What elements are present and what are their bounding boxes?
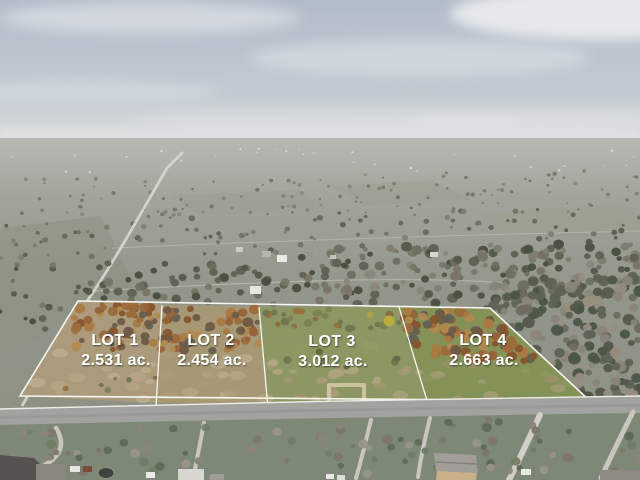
tree bbox=[138, 426, 144, 431]
tree bbox=[528, 291, 537, 299]
tree bbox=[292, 284, 301, 293]
tree bbox=[126, 156, 128, 158]
tree bbox=[369, 229, 374, 234]
tree bbox=[321, 267, 330, 275]
tree bbox=[369, 298, 378, 306]
tree bbox=[209, 268, 218, 276]
tree bbox=[39, 303, 45, 309]
tree bbox=[396, 320, 401, 325]
tree bbox=[255, 188, 259, 192]
tree bbox=[445, 171, 448, 174]
tree bbox=[408, 452, 415, 459]
tree bbox=[611, 248, 621, 257]
tree bbox=[347, 271, 356, 279]
tree bbox=[614, 236, 618, 240]
tree bbox=[478, 292, 485, 299]
tree bbox=[343, 294, 349, 300]
tree bbox=[343, 285, 352, 293]
tree bbox=[71, 315, 78, 321]
tree bbox=[281, 278, 290, 286]
tree bbox=[269, 179, 273, 183]
tree bbox=[286, 179, 290, 183]
tree bbox=[86, 230, 90, 233]
tree bbox=[29, 318, 36, 324]
tree bbox=[101, 295, 108, 301]
tree bbox=[547, 173, 551, 176]
tree bbox=[100, 197, 102, 199]
tree bbox=[417, 287, 425, 295]
tree bbox=[215, 156, 216, 157]
tree bbox=[410, 207, 413, 210]
tree bbox=[493, 245, 502, 253]
ground-patch bbox=[56, 390, 64, 395]
tree bbox=[564, 453, 574, 462]
tree bbox=[177, 212, 181, 216]
ground-patch bbox=[203, 371, 219, 380]
tree bbox=[356, 233, 360, 237]
ground-patch bbox=[229, 371, 246, 380]
tree bbox=[53, 450, 59, 456]
tree bbox=[365, 270, 376, 280]
tree bbox=[11, 291, 17, 296]
tree bbox=[43, 182, 45, 184]
tree bbox=[71, 326, 79, 333]
tree bbox=[14, 262, 20, 267]
building bbox=[262, 251, 271, 257]
tree bbox=[126, 311, 134, 318]
tree bbox=[364, 173, 367, 176]
tree bbox=[595, 251, 604, 259]
tree bbox=[548, 231, 554, 237]
tree bbox=[82, 193, 85, 196]
tree bbox=[104, 278, 113, 287]
tree bbox=[565, 282, 577, 293]
building bbox=[277, 255, 287, 262]
tree bbox=[428, 197, 430, 199]
tree bbox=[516, 306, 527, 316]
tree bbox=[214, 252, 218, 256]
tree bbox=[512, 219, 517, 224]
tree bbox=[341, 263, 347, 269]
white-vehicle bbox=[337, 475, 345, 480]
tree bbox=[483, 263, 488, 268]
tree bbox=[169, 216, 172, 219]
tree bbox=[418, 203, 421, 206]
ground-patch bbox=[272, 369, 283, 375]
tree bbox=[570, 343, 579, 351]
tree bbox=[601, 188, 604, 191]
tree bbox=[442, 175, 446, 178]
house-roof bbox=[36, 464, 66, 480]
tree bbox=[62, 234, 68, 239]
tree bbox=[146, 323, 153, 330]
tree bbox=[36, 231, 40, 235]
tree bbox=[611, 230, 617, 235]
tree bbox=[540, 274, 549, 282]
tree bbox=[464, 176, 468, 179]
tree bbox=[63, 386, 69, 391]
tree bbox=[592, 356, 601, 364]
tree bbox=[130, 449, 140, 458]
tree bbox=[237, 289, 244, 295]
tree bbox=[232, 312, 240, 319]
tree bbox=[489, 282, 500, 291]
tree bbox=[410, 167, 412, 169]
tree bbox=[635, 175, 639, 178]
tree bbox=[528, 263, 537, 271]
tree bbox=[46, 253, 50, 256]
tree bbox=[554, 225, 558, 229]
tree bbox=[466, 192, 470, 195]
tree bbox=[173, 208, 177, 212]
lot-4-label: LOT 4 bbox=[459, 332, 506, 349]
ground-patch bbox=[136, 395, 151, 403]
tree bbox=[560, 248, 566, 253]
tree bbox=[415, 439, 423, 446]
tree bbox=[153, 292, 161, 299]
ground-patch bbox=[161, 351, 175, 359]
tree bbox=[162, 261, 169, 267]
tree bbox=[80, 213, 84, 216]
tree bbox=[71, 342, 81, 351]
tree bbox=[24, 317, 28, 321]
tree bbox=[392, 182, 396, 185]
tree bbox=[583, 330, 593, 339]
tree bbox=[192, 293, 201, 301]
tree bbox=[273, 250, 279, 255]
tree bbox=[593, 288, 602, 296]
ground-patch bbox=[540, 371, 550, 377]
tree bbox=[488, 437, 498, 446]
tree bbox=[172, 213, 176, 217]
tree bbox=[291, 211, 294, 214]
trampoline bbox=[98, 468, 114, 479]
tree bbox=[402, 235, 408, 241]
tree bbox=[472, 439, 481, 447]
tree bbox=[626, 165, 627, 166]
tree bbox=[444, 336, 452, 343]
tree bbox=[524, 271, 529, 276]
tree bbox=[419, 313, 427, 320]
tree bbox=[558, 321, 565, 327]
lot-1-acreage: 2.531 ac. bbox=[81, 352, 150, 369]
tree bbox=[612, 377, 621, 385]
tree bbox=[444, 314, 455, 324]
tree bbox=[42, 326, 48, 332]
tree bbox=[487, 464, 495, 471]
tree bbox=[505, 269, 516, 279]
tree bbox=[303, 153, 305, 155]
tree bbox=[311, 283, 320, 291]
tree bbox=[482, 449, 490, 456]
tree bbox=[421, 448, 428, 455]
tree bbox=[591, 231, 597, 236]
tree bbox=[435, 183, 438, 186]
ground-patch bbox=[126, 383, 140, 391]
tree bbox=[157, 210, 160, 212]
tree bbox=[239, 148, 241, 150]
tree bbox=[510, 291, 520, 300]
yellow-tree bbox=[367, 312, 374, 319]
tree bbox=[531, 447, 537, 452]
tree bbox=[423, 229, 429, 235]
tree bbox=[445, 215, 451, 220]
tree bbox=[396, 205, 398, 207]
tree bbox=[476, 221, 482, 226]
tree bbox=[255, 320, 261, 325]
tree bbox=[163, 306, 172, 314]
tree bbox=[625, 198, 629, 202]
ground-patch bbox=[373, 377, 381, 381]
tree bbox=[623, 379, 630, 385]
tree bbox=[450, 271, 461, 281]
tree bbox=[114, 288, 123, 296]
tree bbox=[135, 283, 144, 291]
tree bbox=[627, 441, 637, 450]
tree bbox=[421, 275, 429, 282]
tree bbox=[424, 219, 430, 224]
tree bbox=[434, 285, 441, 292]
tree bbox=[337, 211, 341, 214]
tree bbox=[105, 226, 109, 230]
tree bbox=[313, 152, 315, 153]
tree bbox=[209, 205, 213, 209]
tree bbox=[298, 254, 306, 261]
tree bbox=[338, 194, 342, 198]
tree bbox=[445, 264, 451, 269]
tree bbox=[88, 171, 91, 173]
tree bbox=[283, 231, 286, 234]
tree bbox=[520, 357, 527, 364]
tree bbox=[185, 203, 188, 206]
ground-patch bbox=[162, 391, 179, 400]
tree bbox=[492, 261, 499, 267]
tree bbox=[586, 239, 593, 245]
tree bbox=[502, 183, 506, 186]
tree bbox=[74, 154, 76, 156]
tree bbox=[305, 208, 309, 212]
tree bbox=[89, 254, 95, 260]
tree bbox=[293, 308, 300, 315]
tree bbox=[317, 215, 323, 221]
tree bbox=[231, 207, 234, 209]
tree bbox=[505, 467, 513, 474]
tree bbox=[135, 271, 143, 278]
tree bbox=[392, 284, 400, 291]
tree bbox=[79, 338, 85, 343]
tree bbox=[578, 275, 584, 280]
tree bbox=[27, 430, 33, 435]
tree bbox=[66, 211, 69, 213]
tree bbox=[141, 444, 151, 453]
tree bbox=[238, 440, 244, 446]
tree bbox=[529, 180, 532, 183]
tree bbox=[181, 208, 184, 210]
tree bbox=[610, 325, 618, 333]
tree bbox=[334, 283, 340, 289]
tree bbox=[344, 278, 350, 284]
tree bbox=[563, 165, 565, 167]
tree bbox=[586, 278, 595, 286]
tree bbox=[285, 150, 287, 152]
tree bbox=[275, 149, 276, 150]
tree bbox=[497, 202, 500, 205]
tree bbox=[485, 417, 492, 424]
tree bbox=[75, 454, 82, 461]
tree bbox=[510, 190, 514, 193]
tree bbox=[471, 269, 477, 275]
ground-patch bbox=[361, 341, 378, 350]
tree bbox=[298, 183, 302, 186]
tree bbox=[627, 242, 633, 247]
tree bbox=[139, 303, 149, 312]
tree bbox=[144, 185, 146, 187]
tree bbox=[528, 252, 537, 260]
tree bbox=[513, 209, 519, 214]
tree bbox=[162, 317, 170, 324]
tree bbox=[65, 171, 67, 173]
tree bbox=[351, 151, 353, 153]
tree bbox=[164, 210, 168, 213]
tree bbox=[495, 418, 503, 425]
tree bbox=[359, 253, 365, 258]
tree bbox=[612, 363, 620, 371]
tree bbox=[249, 328, 258, 336]
white-vehicle bbox=[146, 472, 155, 478]
tree bbox=[257, 148, 259, 150]
tree bbox=[42, 237, 48, 242]
tree bbox=[354, 286, 363, 294]
tree bbox=[202, 211, 205, 214]
tree bbox=[194, 457, 202, 464]
tree bbox=[24, 178, 28, 181]
tree bbox=[11, 156, 13, 158]
ground-patch bbox=[182, 388, 198, 397]
tree bbox=[481, 444, 487, 450]
tree bbox=[166, 314, 171, 319]
tree bbox=[151, 268, 158, 274]
lot-4-acreage: 2.663 ac. bbox=[449, 352, 518, 369]
tree bbox=[438, 310, 445, 316]
ground-patch bbox=[68, 373, 85, 382]
ground-patch bbox=[328, 373, 338, 379]
tree bbox=[567, 210, 570, 213]
tree bbox=[360, 201, 362, 203]
tree bbox=[577, 208, 580, 210]
tree bbox=[14, 243, 18, 247]
ground-patch bbox=[145, 379, 154, 384]
tree bbox=[76, 252, 80, 255]
tree bbox=[179, 198, 182, 201]
tree bbox=[109, 307, 117, 315]
tree bbox=[94, 177, 98, 180]
tree bbox=[416, 170, 418, 172]
tree bbox=[500, 188, 504, 192]
ground-patch bbox=[279, 326, 298, 337]
ground-patch bbox=[431, 371, 445, 379]
tree bbox=[146, 215, 150, 218]
tree bbox=[536, 310, 543, 317]
tree bbox=[413, 214, 416, 217]
tree bbox=[401, 280, 406, 285]
tree bbox=[159, 224, 163, 227]
tree bbox=[530, 353, 538, 360]
tree bbox=[453, 256, 462, 264]
tree bbox=[450, 282, 456, 287]
tree bbox=[469, 285, 477, 292]
tree bbox=[432, 344, 442, 353]
tree bbox=[319, 198, 322, 200]
tree bbox=[309, 270, 315, 275]
ground-patch bbox=[316, 377, 328, 383]
tree bbox=[336, 422, 344, 430]
tree bbox=[536, 267, 545, 275]
tree bbox=[389, 189, 392, 192]
tree bbox=[371, 457, 377, 463]
tree bbox=[327, 185, 330, 188]
ground-patch bbox=[373, 382, 385, 389]
tree bbox=[119, 310, 126, 316]
tree bbox=[249, 304, 260, 314]
tree bbox=[319, 179, 322, 181]
tree bbox=[338, 463, 344, 469]
tree bbox=[514, 155, 516, 156]
tree bbox=[287, 205, 289, 207]
tree bbox=[23, 225, 26, 228]
tree bbox=[111, 191, 115, 195]
tree bbox=[537, 254, 543, 259]
tree bbox=[14, 267, 18, 271]
tree bbox=[564, 228, 568, 232]
tree bbox=[88, 280, 94, 286]
tree bbox=[431, 299, 441, 308]
tree bbox=[603, 364, 613, 373]
tree bbox=[245, 337, 250, 342]
tree bbox=[367, 185, 371, 188]
tree bbox=[355, 200, 357, 202]
tree bbox=[216, 240, 220, 244]
tree bbox=[78, 205, 82, 209]
tree bbox=[451, 219, 456, 223]
tree bbox=[185, 228, 188, 231]
house-roof bbox=[178, 469, 204, 480]
tree bbox=[393, 356, 400, 362]
tree bbox=[623, 256, 630, 262]
tree bbox=[611, 150, 614, 152]
tree bbox=[411, 245, 422, 255]
tree bbox=[154, 376, 159, 380]
tree bbox=[274, 287, 280, 293]
tree bbox=[488, 243, 493, 248]
tree bbox=[359, 262, 369, 271]
tree bbox=[194, 274, 201, 280]
tree bbox=[573, 181, 577, 185]
tree bbox=[292, 181, 295, 184]
tree bbox=[313, 238, 316, 241]
tree bbox=[551, 178, 554, 180]
tree bbox=[322, 313, 329, 319]
tree bbox=[356, 196, 359, 199]
tree bbox=[317, 434, 328, 443]
tree bbox=[629, 304, 638, 312]
building bbox=[250, 286, 261, 294]
tree bbox=[504, 293, 512, 300]
tree bbox=[414, 268, 420, 274]
tree bbox=[467, 227, 471, 231]
tree bbox=[332, 259, 342, 268]
tree bbox=[625, 359, 634, 367]
tree bbox=[281, 312, 286, 317]
